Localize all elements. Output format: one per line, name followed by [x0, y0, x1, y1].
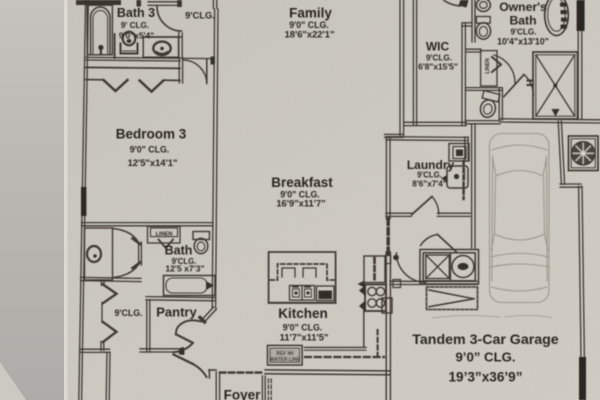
svg-text:9'CLG.: 9'CLG.: [417, 171, 442, 180]
svg-text:12'5 x7'3": 12'5 x7'3": [165, 264, 204, 274]
svg-text:9’0” CLG.: 9’0” CLG.: [455, 350, 515, 365]
svg-text:Bath: Bath: [509, 14, 536, 28]
svg-text:9'0" CLG.: 9'0" CLG.: [130, 145, 170, 155]
svg-text:Pantry: Pantry: [156, 305, 197, 320]
svg-text:Breakfast: Breakfast: [271, 175, 333, 190]
svg-text:19’3”x36’9”: 19’3”x36’9”: [448, 370, 522, 385]
svg-text:Owner's: Owner's: [499, 0, 547, 14]
svg-text:6'8"x15'5": 6'8"x15'5": [418, 62, 458, 72]
svg-text:LINEN: LINEN: [156, 232, 173, 238]
svg-text:10'4"x13'10": 10'4"x13'10": [497, 37, 549, 47]
svg-text:11'7"x11'5": 11'7"x11'5": [280, 332, 329, 343]
svg-text:12'5"x14'1": 12'5"x14'1": [128, 157, 178, 168]
svg-text:Family: Family: [289, 6, 332, 21]
svg-text:8'6"x7'4": 8'6"x7'4": [412, 180, 447, 189]
svg-text:WIC: WIC: [426, 40, 450, 54]
svg-text:Kitchen: Kitchen: [278, 306, 328, 321]
svg-text:16'9"x11'7": 16'9"x11'7": [276, 198, 325, 209]
svg-text:Tandem 3-Car Garage: Tandem 3-Car Garage: [412, 332, 559, 348]
svg-text:9'CLG.: 9'CLG.: [115, 308, 143, 318]
svg-text:WATER LINE: WATER LINE: [270, 357, 301, 363]
svg-text:18'6"x22'1": 18'6"x22'1": [285, 29, 335, 40]
svg-text:Bath 3: Bath 3: [117, 6, 155, 20]
svg-text:9'0"x5'4": 9'0"x5'4": [119, 31, 154, 41]
svg-text:Bath: Bath: [165, 244, 193, 258]
svg-text:9'CLG.: 9'CLG.: [185, 10, 215, 21]
svg-text:9'CLG.: 9'CLG.: [510, 28, 536, 37]
svg-text:Bedroom 3: Bedroom 3: [116, 127, 187, 142]
svg-text:DW: DW: [321, 293, 331, 299]
svg-text:Foyer: Foyer: [224, 388, 262, 400]
svg-text:LINEN: LINEN: [485, 58, 491, 74]
svg-text:9' CLG.: 9' CLG.: [121, 21, 149, 30]
